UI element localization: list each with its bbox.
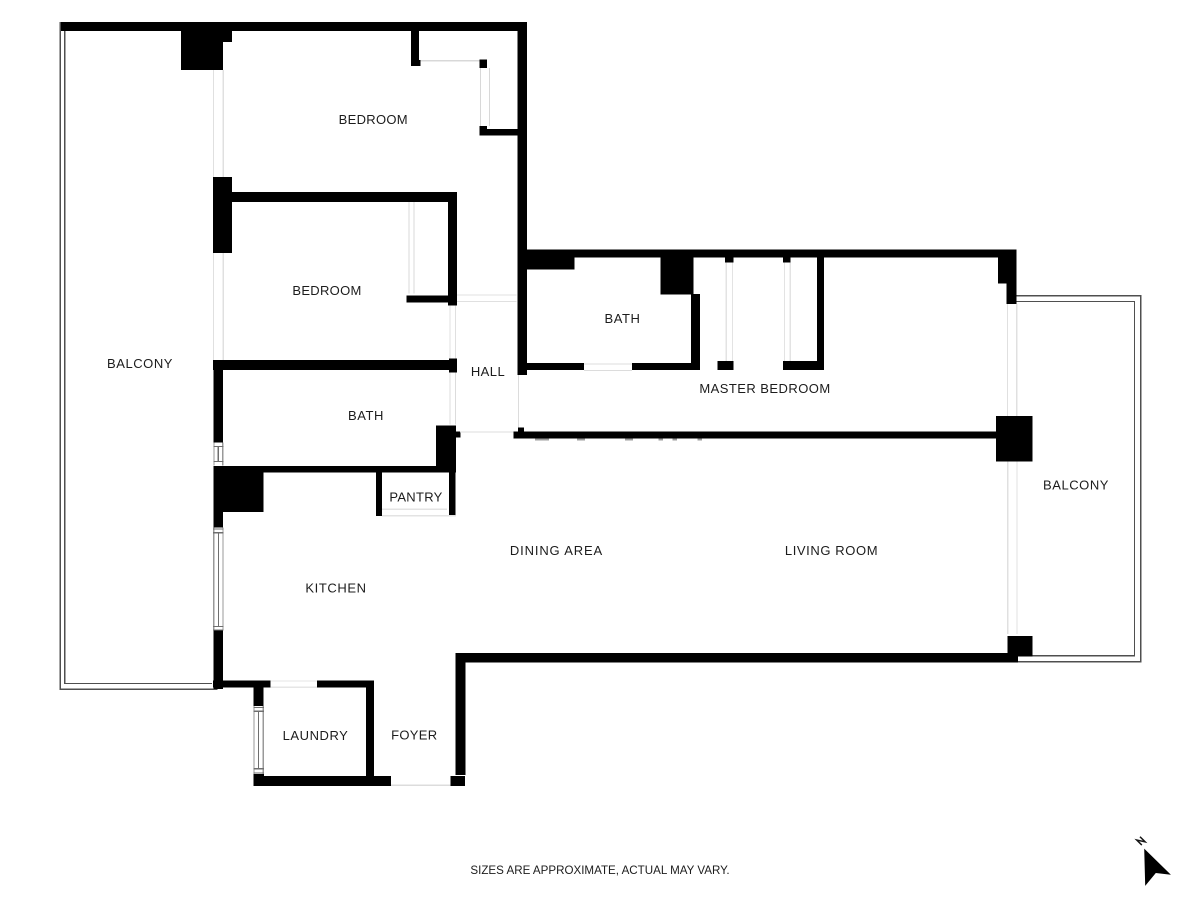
svg-text:BEDROOM: BEDROOM [292,283,361,298]
svg-text:KITCHEN: KITCHEN [305,581,366,596]
svg-text:DINING AREA: DINING AREA [510,543,603,558]
svg-text:LIVING ROOM: LIVING ROOM [785,543,878,558]
svg-text:BATH: BATH [348,408,384,423]
svg-text:PANTRY: PANTRY [389,489,442,504]
svg-text:BEDROOM: BEDROOM [339,112,408,127]
svg-text:BALCONY: BALCONY [1043,477,1109,492]
svg-text:FOYER: FOYER [391,728,437,743]
svg-text:BATH: BATH [605,311,641,326]
svg-text:BALCONY: BALCONY [107,356,173,371]
svg-text:SIZES ARE APPROXIMATE, ACTUAL: SIZES ARE APPROXIMATE, ACTUAL MAY VARY. [470,864,729,877]
svg-text:LAUNDRY: LAUNDRY [283,728,349,743]
svg-text:MASTER BEDROOM: MASTER BEDROOM [699,381,830,396]
svg-text:HALL: HALL [471,364,505,379]
